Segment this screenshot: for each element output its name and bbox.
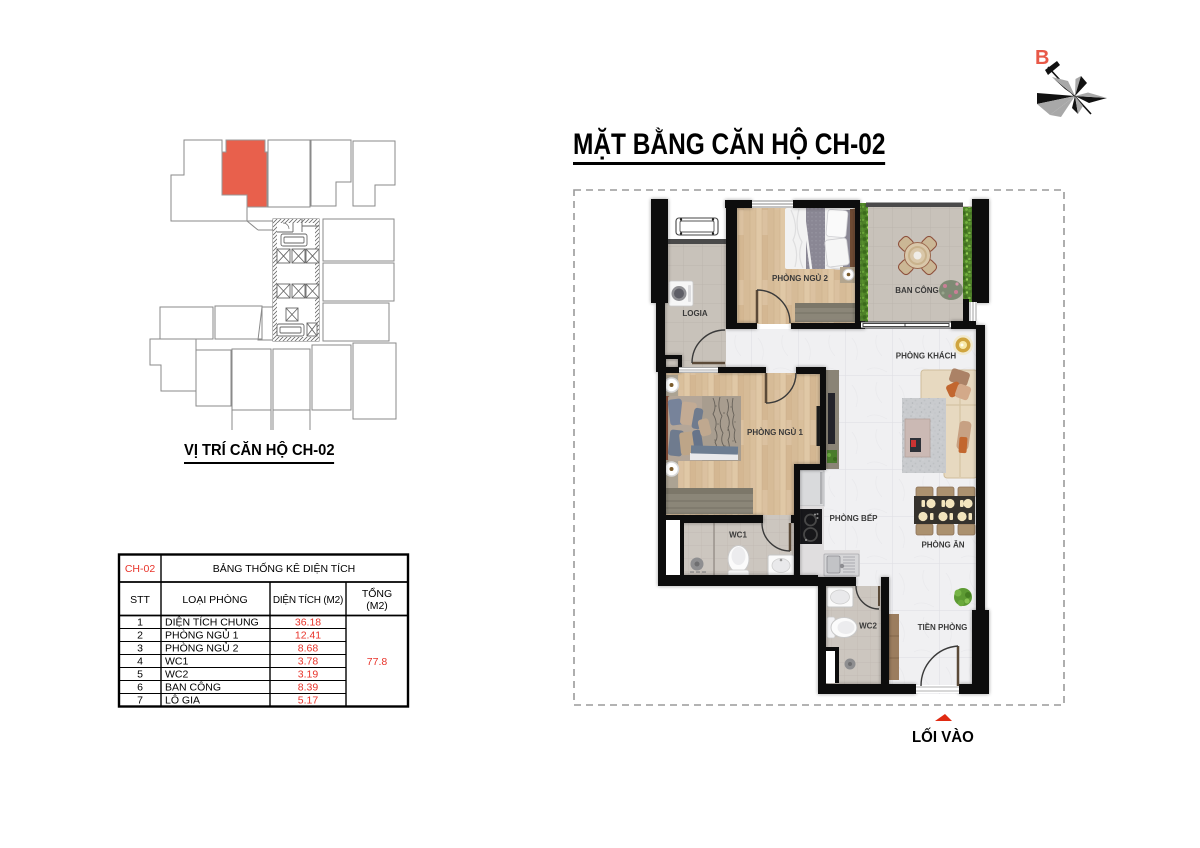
svg-text:B: B xyxy=(1035,47,1049,69)
svg-text:PHÒNG NGỦ 1: PHÒNG NGỦ 1 xyxy=(165,629,239,642)
svg-text:36.18: 36.18 xyxy=(295,617,321,629)
svg-text:PHÒNG NGỦ 2: PHÒNG NGỦ 2 xyxy=(772,274,829,283)
svg-text:LÔ GIA: LÔ GIA xyxy=(165,694,200,707)
svg-text:77.8: 77.8 xyxy=(367,656,388,668)
svg-text:BẢNG THỐNG KÊ DIỆN TÍCH: BẢNG THỐNG KÊ DIỆN TÍCH xyxy=(213,561,356,575)
svg-text:3: 3 xyxy=(137,643,143,655)
svg-text:2: 2 xyxy=(137,630,143,642)
svg-text:BAN CÔNG: BAN CÔNG xyxy=(165,681,221,694)
svg-text:PHÒNG BẾP: PHÒNG BẾP xyxy=(829,513,878,523)
svg-text:PHÒNG ĂN: PHÒNG ĂN xyxy=(921,541,964,550)
svg-text:3.78: 3.78 xyxy=(298,656,319,668)
svg-text:TIỀN PHÒNG: TIỀN PHÒNG xyxy=(918,622,968,632)
svg-text:5: 5 xyxy=(137,669,143,681)
svg-text:STT: STT xyxy=(130,594,150,606)
svg-text:8.68: 8.68 xyxy=(298,643,319,655)
svg-text:3.19: 3.19 xyxy=(298,669,319,681)
svg-text:WC1: WC1 xyxy=(729,531,747,540)
svg-text:TỔNG: TỔNG xyxy=(362,587,392,600)
svg-text:1: 1 xyxy=(137,617,143,629)
svg-text:12.41: 12.41 xyxy=(295,630,321,642)
svg-text:8.39: 8.39 xyxy=(298,682,319,694)
svg-text:WC2: WC2 xyxy=(859,622,877,631)
svg-text:PHÒNG NGỦ 2: PHÒNG NGỦ 2 xyxy=(165,642,239,655)
svg-text:7: 7 xyxy=(137,695,143,707)
svg-text:6: 6 xyxy=(137,682,143,694)
svg-text:DIỆN TÍCH (M2): DIỆN TÍCH (M2) xyxy=(273,593,343,606)
svg-text:PHÒNG NGỦ 1: PHÒNG NGỦ 1 xyxy=(747,428,804,437)
svg-text:LOGIA: LOGIA xyxy=(682,309,708,318)
svg-text:5.17: 5.17 xyxy=(298,695,319,707)
svg-text:(M2): (M2) xyxy=(366,600,388,612)
svg-text:CH-02: CH-02 xyxy=(125,563,156,575)
svg-text:BAN CÔNG: BAN CÔNG xyxy=(895,286,939,295)
svg-text:WC1: WC1 xyxy=(165,656,188,668)
svg-text:WC2: WC2 xyxy=(165,669,188,681)
svg-text:4: 4 xyxy=(137,656,143,668)
svg-text:DIỆN TÍCH CHUNG: DIỆN TÍCH CHUNG xyxy=(165,616,259,629)
svg-text:PHÒNG KHÁCH: PHÒNG KHÁCH xyxy=(896,352,957,361)
svg-text:LOẠI PHÒNG: LOẠI PHÒNG xyxy=(182,593,247,606)
